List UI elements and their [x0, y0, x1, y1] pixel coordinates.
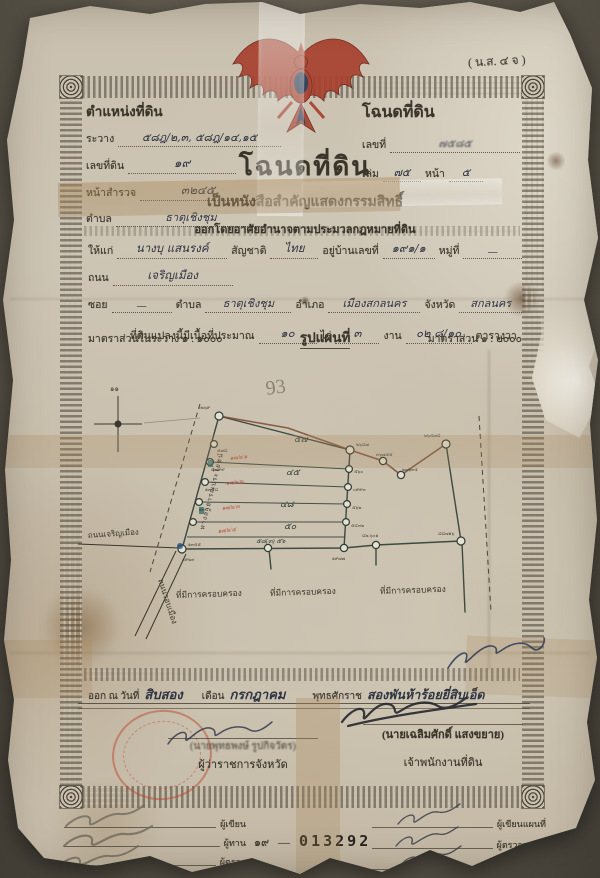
chief-role: หัวหน้าการ [503, 859, 546, 873]
map-inspector-line [372, 848, 493, 849]
corner-rosette [60, 786, 82, 808]
map-inspector-role: ผู้ตรวจแผนที่ [497, 838, 546, 852]
month-label: เดือน [202, 689, 225, 704]
position-title: ตำแหน่งที่ดิน [86, 100, 281, 122]
give-label: ให้แก่ [88, 242, 113, 259]
map-writer-line [372, 827, 493, 828]
road-left-label: ถนนเจริญเมือง [88, 527, 140, 540]
cadastral-map: ๑๑ 93 [58, 360, 544, 646]
land-officer-block: (นายเฉลิมศักดิ์ แสงขยาย) เจ้าพนักงานที่ด… [350, 724, 536, 771]
blue-ink-blob [177, 543, 183, 549]
deed-box-title: โฉนดที่ดิน [362, 100, 520, 125]
owner-tambon-value: ธาตุเชิงชุม [223, 297, 274, 310]
amphoe-value: เมืองสกลนคร [343, 297, 407, 310]
parcel-bottom-note: ๕๘(๓) ๕๖ [256, 538, 286, 545]
svg-text:๑๗๖/๔: ๑๗๖/๔ [218, 527, 238, 535]
ravang-value: ๕๘ฎ/๒,๓, ๕๘ฎ/๑๔,๑๕ [142, 131, 257, 144]
scale-in-ravang: มาตราส่วนในระวาง ๑ : ๑๐๐๐ [88, 330, 223, 347]
moo-value: — [487, 246, 498, 258]
tape-strip-bottom-right [465, 636, 600, 699]
soi-label: ซอย [88, 296, 108, 313]
serial-thai: ๑๙ [254, 833, 269, 851]
issue-day: สิบสอง [144, 684, 182, 705]
svg-text:ที่มีการครอบครอง: ที่มีการครอบครอง [270, 585, 336, 598]
road-label: ถนน [88, 269, 109, 286]
svg-text:๐๙๒๓: ๐๙๒๓ [182, 557, 194, 562]
photo-backdrop: ( น.ส. ๔ จ ) ตำแหน่งที่ดิน ระวาง ๕๘ฎ/๒,๓ [0, 0, 600, 878]
amphoe-label: อำเภอ [295, 296, 324, 313]
svg-text:๑๙๗๗: ๑๙๗๗ [332, 556, 346, 561]
moo-label: หมู่ที่ [439, 242, 460, 259]
survey-line [144, 418, 200, 423]
svg-text:๐๒๖๙: ๐๒๖๙ [198, 405, 211, 410]
writer-line [64, 827, 216, 828]
inspector-role: ผู้ตรวจ [220, 855, 246, 869]
address-label: อยู่บ้านเลขที่ [322, 242, 378, 259]
proofreader-line [64, 846, 220, 847]
svg-text:๔๕: ๔๕ [286, 467, 301, 477]
svg-text:๔๘: ๔๘ [280, 499, 295, 509]
soi-value: — [136, 300, 147, 312]
svg-text:๘๒.๖๐๑: ๘๒.๖๐๑ [362, 533, 378, 538]
compass-number: ๑๑ [110, 385, 119, 393]
issued-label: ออก ณ วันที่ [88, 689, 139, 704]
issue-month: กรกฎาคม [229, 684, 285, 705]
inspector-line [64, 865, 216, 866]
svg-text:๘๘๗๑๖: ๘๘๗๑๖ [438, 531, 454, 536]
footer-left-roles: ผู้เขียน ผู้ทาน ผู้ตรวจ [64, 812, 246, 869]
tape-strip-map [0, 435, 600, 468]
address-value: ๑๙๑/๑ [392, 241, 426, 255]
paper-stain [546, 152, 566, 170]
land-no-label: เลขที่ดิน [86, 157, 124, 174]
form-code: ( น.ส. ๔ จ ) [468, 51, 527, 73]
chief-line [372, 869, 499, 870]
svg-text:๕๖๐: ๕๖๐ [354, 469, 363, 474]
pencil-note: 93 [264, 375, 287, 400]
garuda-right-leg [310, 102, 324, 118]
svg-text:๕๖๒: ๕๖๒ [352, 505, 361, 510]
map-scale: มาตราส่วน ๑ : ๒๐๐๐ [428, 330, 522, 347]
owner-name: นางบุ แสนรงค์ [136, 241, 209, 255]
svg-text:๐๙๙๓: ๐๙๙๓ [353, 487, 366, 492]
svg-text:๑๗๖/๓: ๑๗๖/๓ [222, 504, 241, 512]
border-pattern-predate [84, 668, 520, 681]
officer-name: (นายเฉลิมศักดิ์ แสงขยาย) [350, 725, 536, 743]
map-writer-role: ผู้เขียนแผนที่ [497, 817, 546, 831]
province-label: จังหวัด [424, 296, 455, 313]
footer-right-roles: ผู้เขียนแผนที่ ผู้ตรวจแผนที่ หัวหน้าการ [372, 810, 546, 873]
svg-text:๕๐: ๕๐ [284, 521, 297, 531]
serial-separator: — [278, 835, 290, 850]
road-value: เจริญเมือง [147, 268, 198, 282]
svg-text:๑๓๕๕: ๑๓๕๕ [188, 542, 202, 547]
proofreader-role: ผู้ทาน [224, 836, 246, 850]
corner-rosette [522, 786, 544, 808]
corner-rosette [60, 76, 82, 98]
writer-role: ผู้เขียน [220, 817, 246, 831]
scale-row: มาตราส่วนในระวาง ๑ : ๑๐๐๐ รูปแผนที่ มาตร… [88, 326, 522, 349]
officer-title: เจ้าพนักงานที่ดิน [350, 753, 536, 771]
deed-paper: ( น.ส. ๔ จ ) ตำแหน่งที่ดิน ระวาง ๕๘ฎ/๒,๓ [0, 0, 600, 878]
owner-tambon-label: ตำบล [176, 296, 202, 313]
tape-strip-bottom-vertical [296, 698, 340, 878]
nationality-value: ไทย [284, 241, 304, 255]
province-value: สกลนคร [470, 297, 511, 310]
corner-rosette [522, 76, 544, 98]
deed-authority-line: ออกโดยอาศัยอำนาจตามประมวลกฎหมายที่ดิน [140, 220, 470, 238]
svg-text:๕๔๓๒: ๕๔๓๒ [351, 523, 364, 528]
svg-text:ที่มีการครอบครอง: ที่มีการครอบครอง [380, 583, 446, 596]
tape-strip-bottom-left [0, 640, 92, 698]
tape-strip-header [58, 177, 401, 217]
svg-text:ที่มีการครอบครอง: ที่มีการครอบครอง [176, 587, 242, 600]
possession-labels: ที่มีการครอบครอง ที่มีการครอบครอง ที่มีก… [176, 583, 446, 600]
map-figure-title: รูปแผนที่ [300, 326, 351, 349]
ravang-label: ระวาง [86, 130, 114, 147]
paper-wrap: ( น.ส. ๔ จ ) ตำแหน่งที่ดิน ระวาง ๕๘ฎ/๒,๓ [0, 0, 600, 878]
road-diagonal-label: ถนนรอบเมือง [156, 578, 179, 625]
svg-text:๑๗๖/๒: ๑๗๖/๒ [226, 479, 244, 487]
nationality-label: สัญชาติ [231, 242, 266, 259]
vertex-numbers: ๐๒๖๙ ๒๖๘๗ ๓๖๗๕๕ ๒๓๖๓๕ ๒๖๔๗๘ ๕๗๘ ๕๗๙๙ ๑๓๔… [182, 405, 454, 562]
